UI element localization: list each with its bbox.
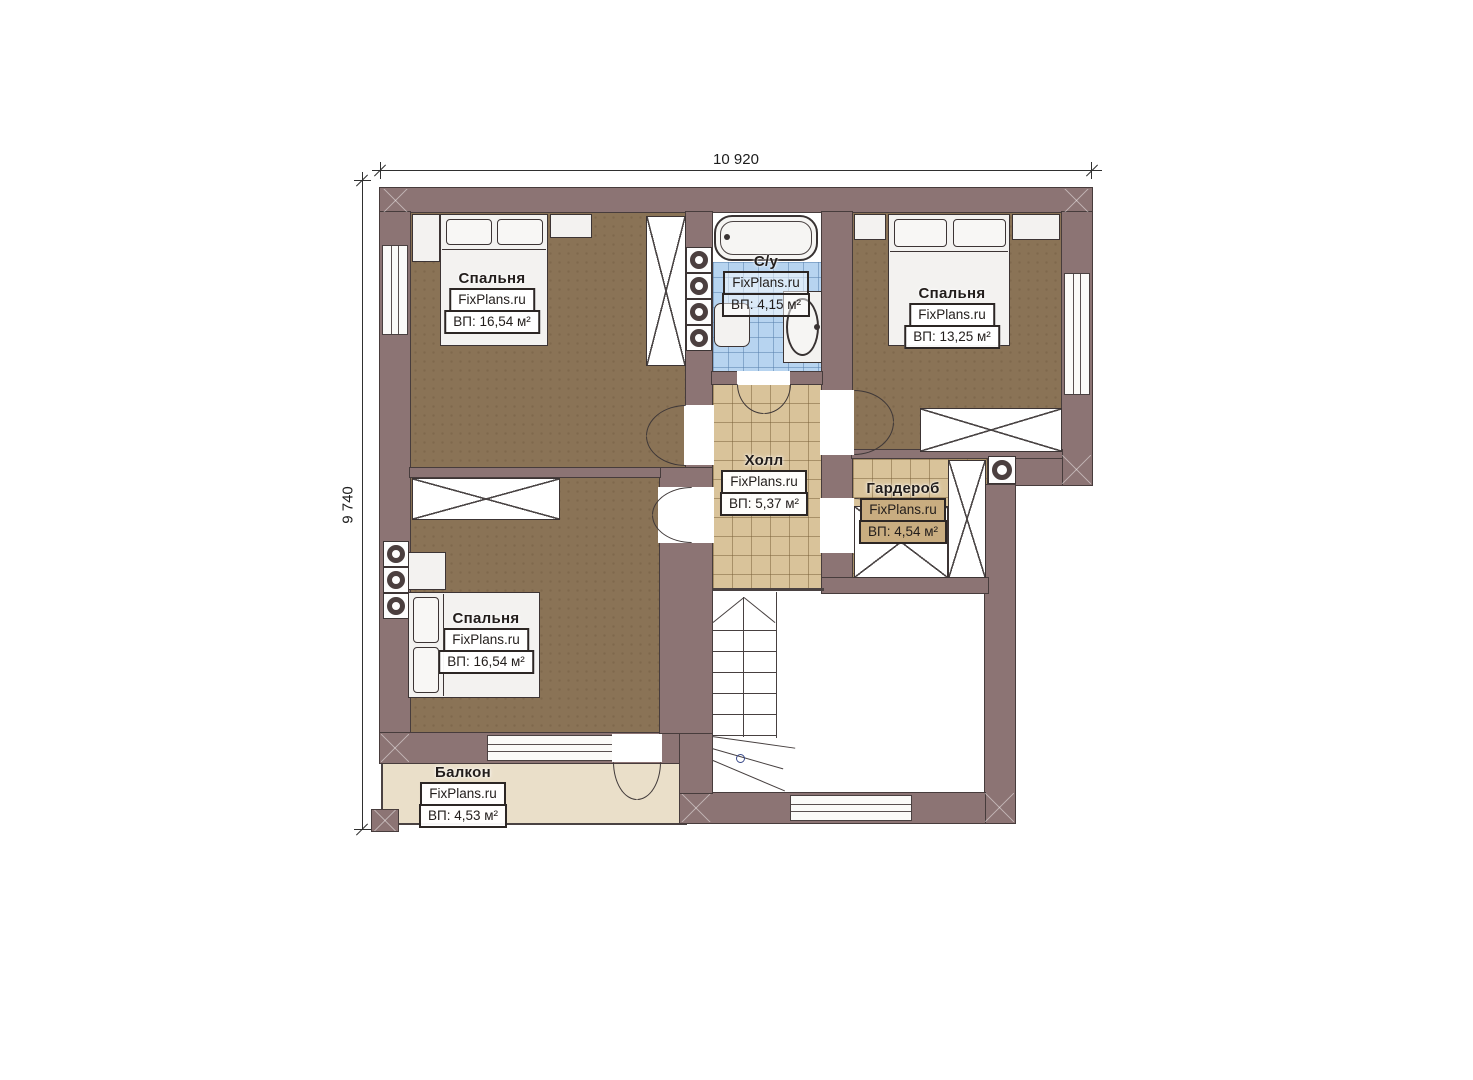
stair-stringer-edge: [776, 592, 777, 738]
pillow: [953, 219, 1006, 247]
room-name: С/у: [754, 253, 778, 270]
radiator-symbol: [686, 247, 712, 273]
label-wardrobe: Гардероб FixPlans.ru ВП: 4,54 м²: [859, 480, 947, 544]
room-name: Спальня: [919, 285, 986, 302]
window-stair-hall: [790, 795, 912, 821]
wall-wardrobe-bottom: [822, 578, 988, 593]
nightstand: [408, 552, 446, 590]
brand-label: FixPlans.ru: [860, 498, 946, 522]
label-bedroom-bottom-left: Спальня FixPlans.ru ВП: 16,54 м²: [438, 610, 534, 674]
radiator-symbol: [383, 541, 409, 567]
door-opening-bathroom: [737, 371, 790, 385]
label-bathroom: С/у FixPlans.ru ВП: 4,15 м²: [722, 253, 810, 317]
wall-between-bedrooms: [410, 468, 660, 477]
bathtub-drain: [724, 234, 730, 240]
wall-top: [380, 188, 1092, 212]
wall-corner-hatch: [1062, 189, 1091, 212]
stair-marker: [736, 754, 745, 763]
wall-corner-hatch: [1062, 455, 1091, 484]
pillow: [413, 597, 439, 643]
pillow: [413, 647, 439, 693]
room-name: Балкон: [435, 764, 491, 781]
brand-label: FixPlans.ru: [723, 271, 809, 295]
wall-corner-hatch: [381, 189, 410, 212]
dimension-height-label: 9 740: [340, 486, 357, 524]
window-bedroom-right: [1064, 273, 1090, 395]
brand-label: FixPlans.ru: [909, 303, 995, 327]
radiator-symbol: [686, 325, 712, 351]
room-name: Спальня: [453, 610, 520, 627]
door-opening-balcony: [612, 734, 662, 762]
dimension-extension: [354, 829, 371, 830]
wall-corner-hatch: [681, 794, 711, 822]
radiator-symbol: [988, 456, 1016, 484]
blanket-edge: [890, 251, 1008, 252]
room-area: ВП: 16,54 м²: [444, 310, 540, 334]
dresser: [550, 214, 592, 238]
pillow: [446, 219, 492, 245]
pillow: [894, 219, 947, 247]
radiator-symbol: [383, 593, 409, 619]
door-opening-bedroom-top-left: [684, 405, 714, 465]
floor-plan-page: 10 920 9 740: [0, 0, 1473, 1080]
room-area: ВП: 13,25 м²: [904, 325, 1000, 349]
brand-label: FixPlans.ru: [420, 782, 506, 806]
nightstand: [854, 214, 886, 240]
wardrobe-cabinet: [920, 408, 1062, 452]
wall-stair-left: [680, 733, 712, 793]
room-name: Гардероб: [866, 480, 939, 497]
brand-label: FixPlans.ru: [721, 470, 807, 494]
balcony-corner-post: [372, 810, 398, 831]
nightstand: [412, 214, 440, 262]
label-balcony: Балкон FixPlans.ru ВП: 4,53 м²: [419, 764, 507, 828]
window-balcony: [487, 735, 613, 761]
hall-stair-edge: [712, 588, 824, 591]
radiator-symbol: [686, 299, 712, 325]
radiator-symbol: [383, 567, 409, 593]
room-name: Холл: [745, 452, 784, 469]
dimension-top-line: [372, 170, 1102, 171]
room-name: Спальня: [459, 270, 526, 287]
dimension-extension: [354, 180, 371, 181]
toilet-valve: [814, 324, 820, 330]
dimension-width-label: 10 920: [713, 151, 759, 168]
wall-corner-hatch: [381, 734, 409, 762]
blanket-edge: [442, 249, 546, 250]
nightstand: [1012, 214, 1060, 240]
label-hall: Холл FixPlans.ru ВП: 5,37 м²: [720, 452, 808, 516]
door-opening-wardrobe: [820, 498, 854, 553]
brand-label: FixPlans.ru: [443, 628, 529, 652]
room-area: ВП: 5,37 м²: [720, 492, 808, 516]
room-area: ВП: 4,53 м²: [419, 804, 507, 828]
label-bedroom-right: Спальня FixPlans.ru ВП: 13,25 м²: [904, 285, 1000, 349]
wall-corner-hatch: [985, 793, 1014, 822]
pillow: [497, 219, 543, 245]
stair-treads: [712, 630, 776, 736]
brand-label: FixPlans.ru: [449, 288, 535, 312]
wardrobe-cabinet: [948, 460, 986, 578]
dimension-extension: [1091, 162, 1092, 179]
wardrobe-cabinet: [646, 216, 686, 366]
dimension-extension: [380, 162, 381, 179]
room-area: ВП: 16,54 м²: [438, 650, 534, 674]
room-area: ВП: 4,15 м²: [722, 293, 810, 317]
room-area: ВП: 4,54 м²: [859, 520, 947, 544]
window-bedroom-top-left: [382, 245, 408, 335]
dimension-left-line: [362, 172, 363, 830]
wardrobe-cabinet: [412, 478, 560, 520]
wall-right-lower: [985, 485, 1015, 823]
label-bedroom-top-left: Спальня FixPlans.ru ВП: 16,54 м²: [444, 270, 540, 334]
door-opening-bedroom-right: [820, 390, 854, 455]
stair-center-rail: [743, 597, 744, 737]
radiator-symbol: [686, 273, 712, 299]
